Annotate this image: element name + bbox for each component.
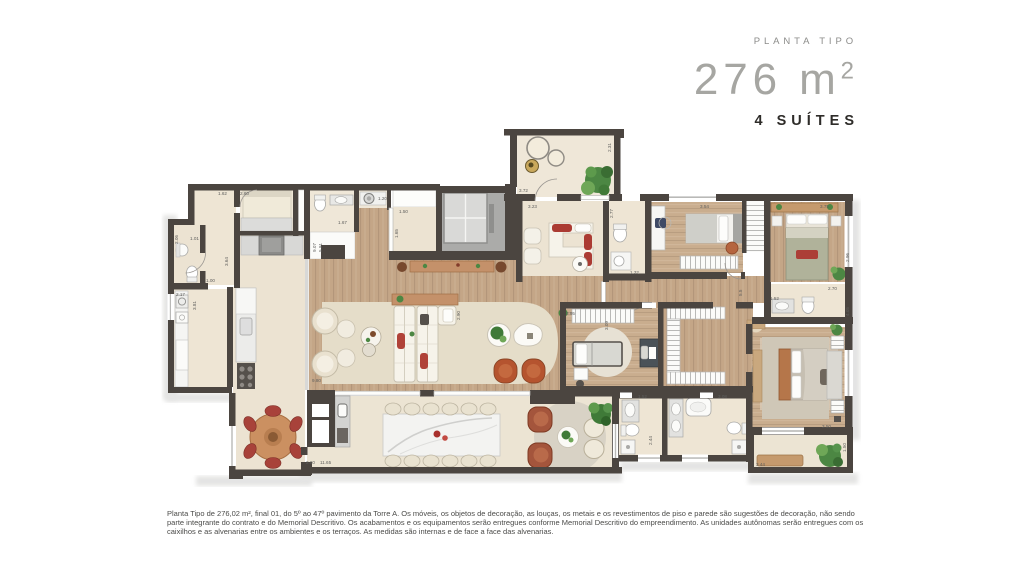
svg-text:1.32: 1.32 (630, 270, 639, 275)
svg-text:3.09: 3.09 (604, 321, 609, 330)
svg-text:3.75: 3.75 (820, 204, 829, 209)
svg-text:1.67: 1.67 (338, 220, 347, 225)
svg-text:1.62: 1.62 (218, 191, 227, 196)
svg-text:1.52: 1.52 (638, 394, 647, 399)
svg-text:2.90: 2.90 (456, 311, 461, 320)
svg-text:1.01: 1.01 (190, 236, 199, 241)
svg-text:2.96: 2.96 (845, 253, 850, 262)
svg-text:3.08: 3.08 (718, 394, 727, 399)
svg-text:3.44: 3.44 (756, 462, 765, 467)
svg-text:3.95: 3.95 (566, 311, 575, 316)
svg-text:2.77: 2.77 (609, 209, 614, 218)
svg-text:2.44: 2.44 (648, 436, 653, 445)
svg-text:3.23: 3.23 (528, 204, 537, 209)
svg-text:11.65: 11.65 (320, 460, 332, 465)
svg-text:1.65: 1.65 (394, 229, 399, 238)
svg-text:4.05: 4.05 (845, 307, 850, 316)
svg-text:5.5: 5.5 (738, 289, 743, 296)
svg-text:1.52: 1.52 (770, 296, 779, 301)
svg-text:1.50: 1.50 (399, 209, 408, 214)
svg-text:3.50: 3.50 (822, 424, 831, 429)
svg-text:5.91: 5.91 (318, 243, 323, 252)
svg-text:2.31: 2.31 (607, 143, 612, 152)
svg-text:3.72: 3.72 (519, 188, 528, 193)
svg-text:1.50: 1.50 (842, 443, 847, 452)
svg-text:2.60: 2.60 (240, 191, 249, 196)
svg-text:9.07: 9.07 (312, 243, 317, 252)
svg-text:2.17: 2.17 (176, 292, 185, 297)
svg-text:3.54: 3.54 (700, 204, 709, 209)
svg-text:1.20: 1.20 (378, 196, 387, 201)
svg-text:2.60: 2.60 (306, 460, 315, 465)
svg-text:3.64: 3.64 (224, 257, 229, 266)
svg-text:2.70: 2.70 (828, 286, 837, 291)
svg-text:2.06: 2.06 (174, 235, 179, 244)
svg-text:1.00: 1.00 (206, 278, 215, 283)
svg-text:9.80: 9.80 (312, 378, 321, 383)
svg-text:3.81: 3.81 (192, 301, 197, 310)
